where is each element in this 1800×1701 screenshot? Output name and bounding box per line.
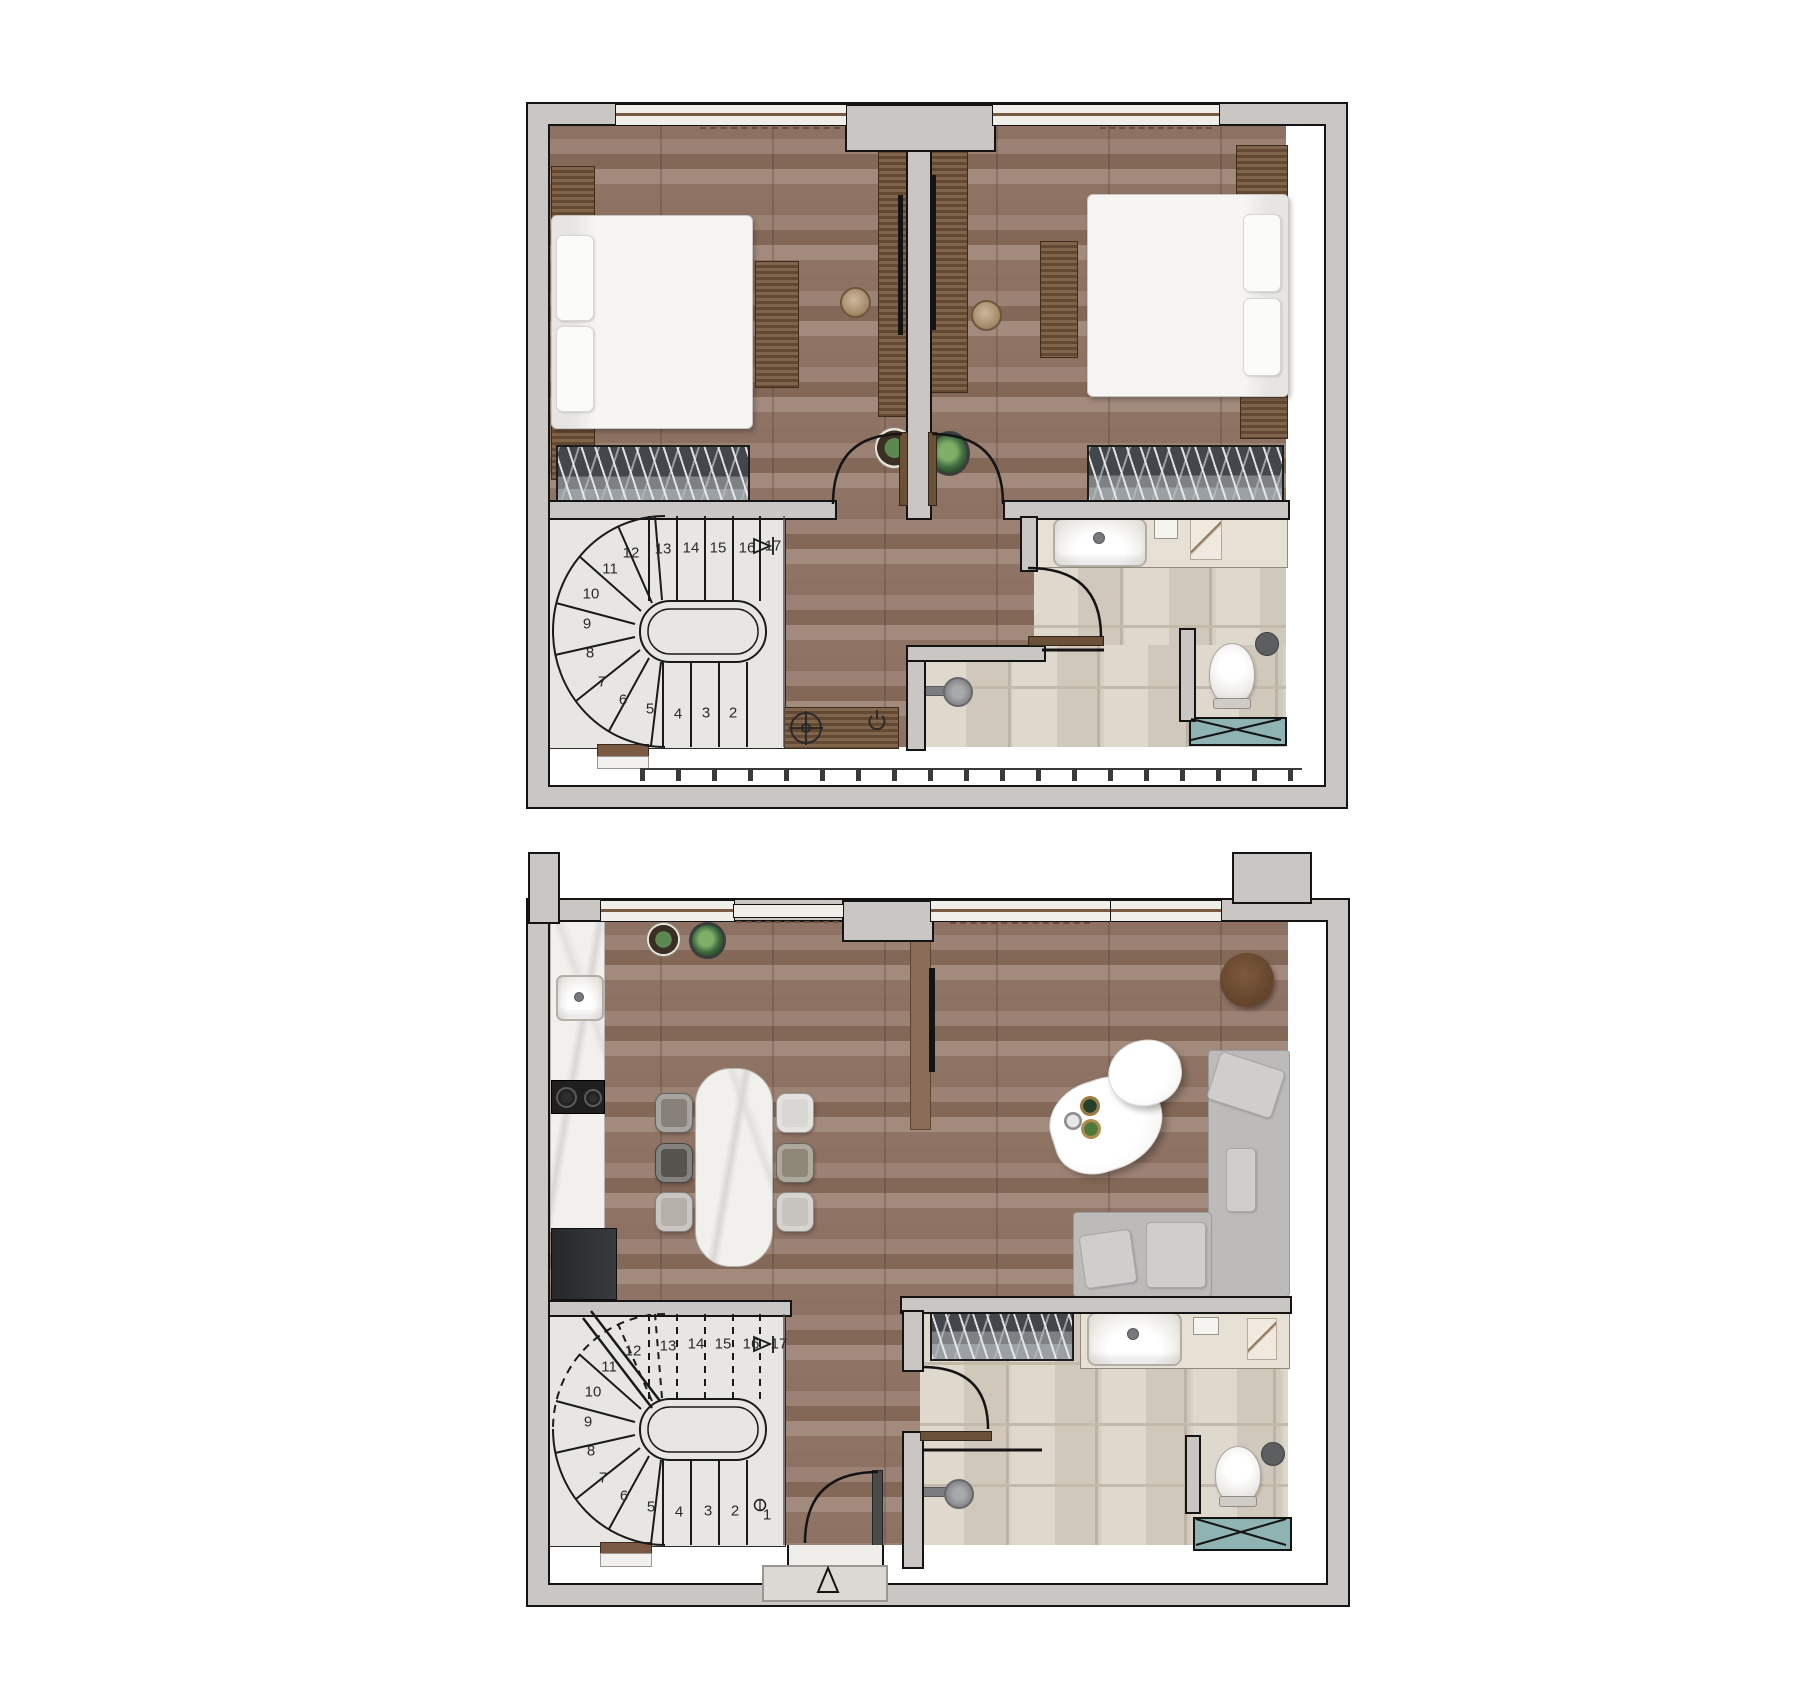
stair-step-number: 7 [598, 674, 606, 691]
stair-step-number: 2 [731, 1503, 739, 1520]
stair-step-number: 12 [623, 545, 640, 562]
stair-step-number: 6 [619, 692, 627, 709]
stair-step-number: 12 [625, 1343, 642, 1360]
stair-step-number: 15 [715, 1336, 732, 1353]
stair-step-number: 14 [688, 1336, 705, 1353]
stair-step-number: 17 [771, 1336, 788, 1353]
stair-step-number: 9 [583, 616, 591, 633]
stair-step-number: 17 [765, 538, 782, 555]
ground-stair-numbers: 1234567891011121314151617 [0, 0, 1800, 1701]
stair-step-number: 4 [674, 706, 682, 723]
stair-step-number: 9 [584, 1414, 592, 1431]
stair-step-number: 11 [601, 1359, 617, 1376]
stair-step-number: 11 [602, 561, 618, 578]
stair-step-number: 15 [710, 540, 727, 557]
stair-step-number: 5 [646, 701, 654, 718]
stair-step-number: 13 [660, 1338, 677, 1355]
stair-step-number: 10 [583, 586, 600, 603]
stair-step-number: 4 [675, 1504, 683, 1521]
stair-step-number: 16 [739, 540, 756, 557]
stair-step-number: 8 [586, 645, 594, 662]
stair-step-number: 10 [585, 1384, 602, 1401]
floor-plan-canvas: 234567891011121314151617 123456789101112… [0, 0, 1800, 1701]
stair-step-number: 5 [647, 1499, 655, 1516]
stair-step-number: 3 [702, 705, 710, 722]
stair-step-number: 3 [704, 1503, 712, 1520]
stair-step-number: 6 [620, 1488, 628, 1505]
stair-step-number: 1 [763, 1507, 771, 1524]
stair-step-number: 16 [743, 1336, 760, 1353]
stair-step-number: 7 [599, 1470, 607, 1487]
stair-step-number: 8 [587, 1443, 595, 1460]
stair-step-number: 2 [729, 705, 737, 722]
stair-step-number: 13 [655, 541, 672, 558]
stair-step-number: 14 [683, 540, 700, 557]
